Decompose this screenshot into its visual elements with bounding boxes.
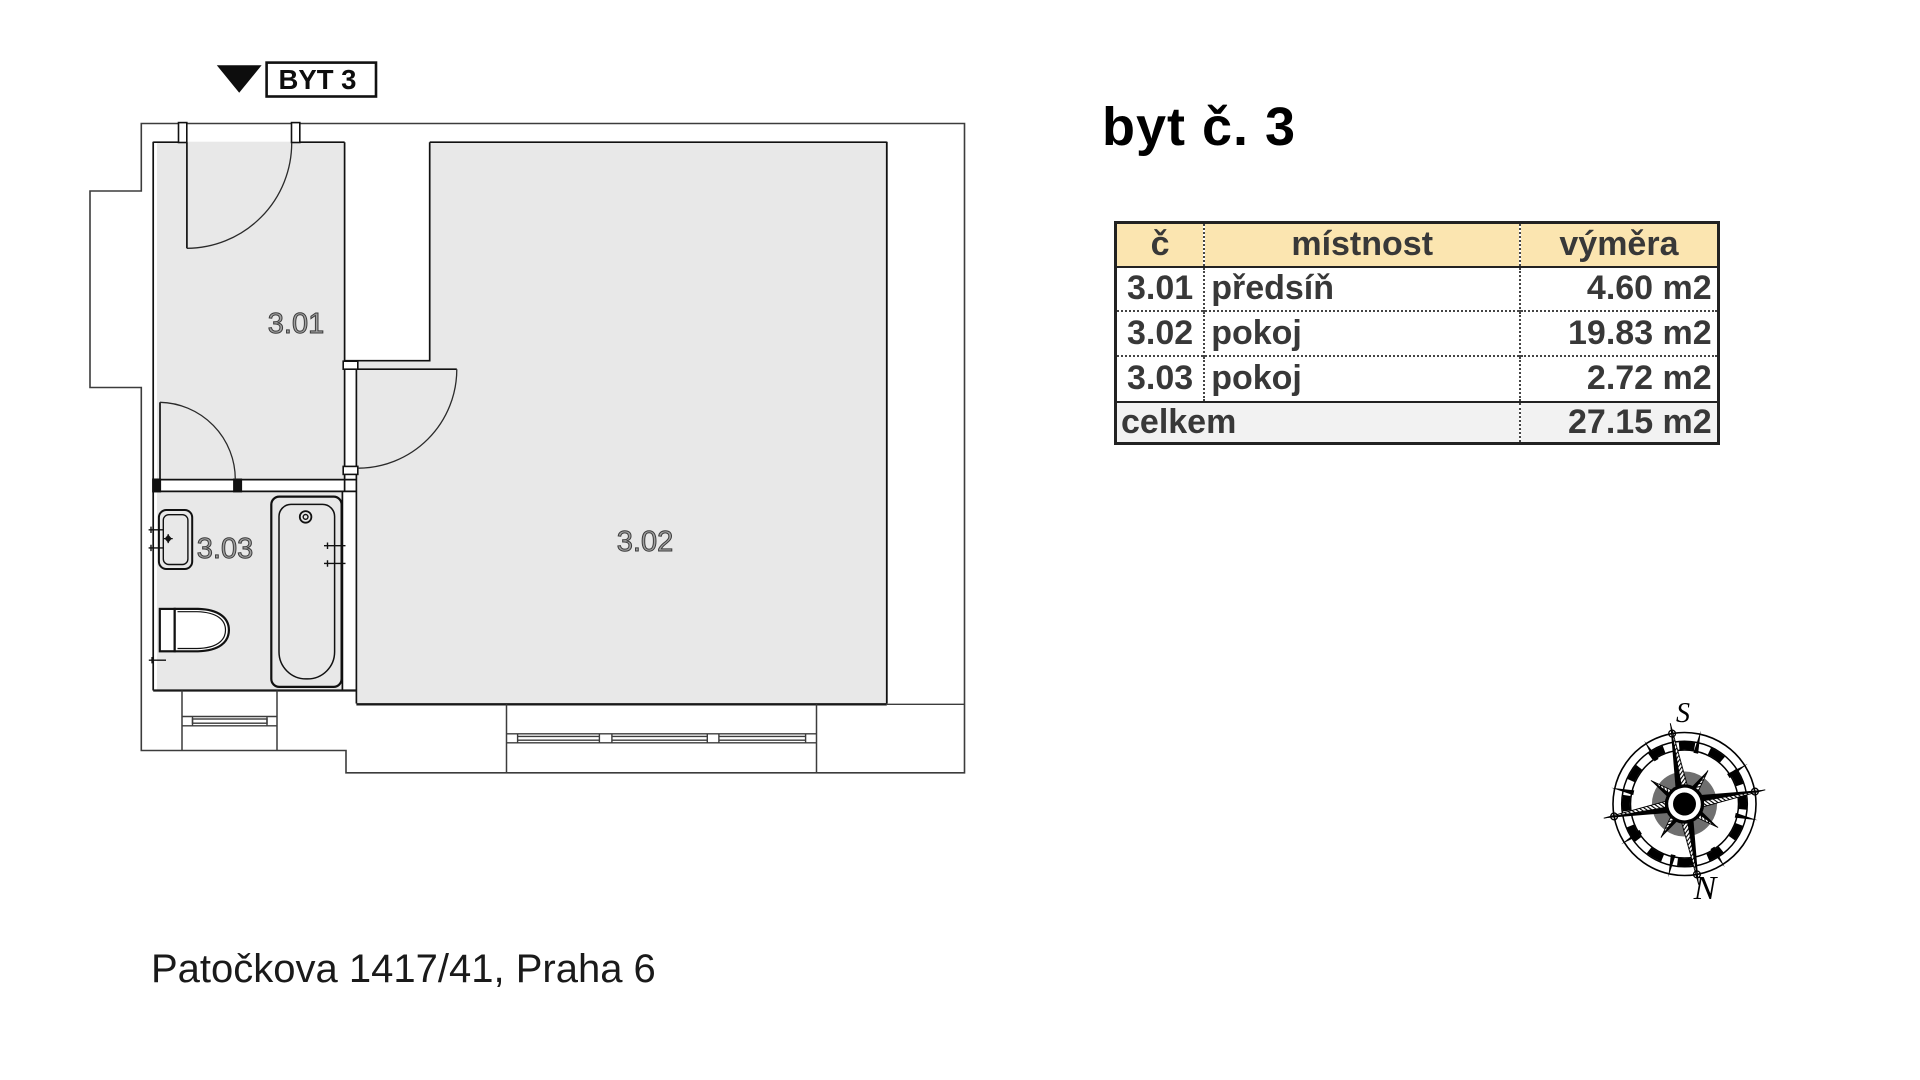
svg-text:3.02: 3.02 (617, 526, 673, 558)
svg-text:3.03: 3.03 (197, 533, 253, 565)
svg-text:S: S (1676, 698, 1690, 729)
svg-text:3.01: 3.01 (268, 308, 324, 340)
svg-text:BYT 3: BYT 3 (279, 64, 357, 95)
svg-text:N: N (1693, 870, 1719, 907)
